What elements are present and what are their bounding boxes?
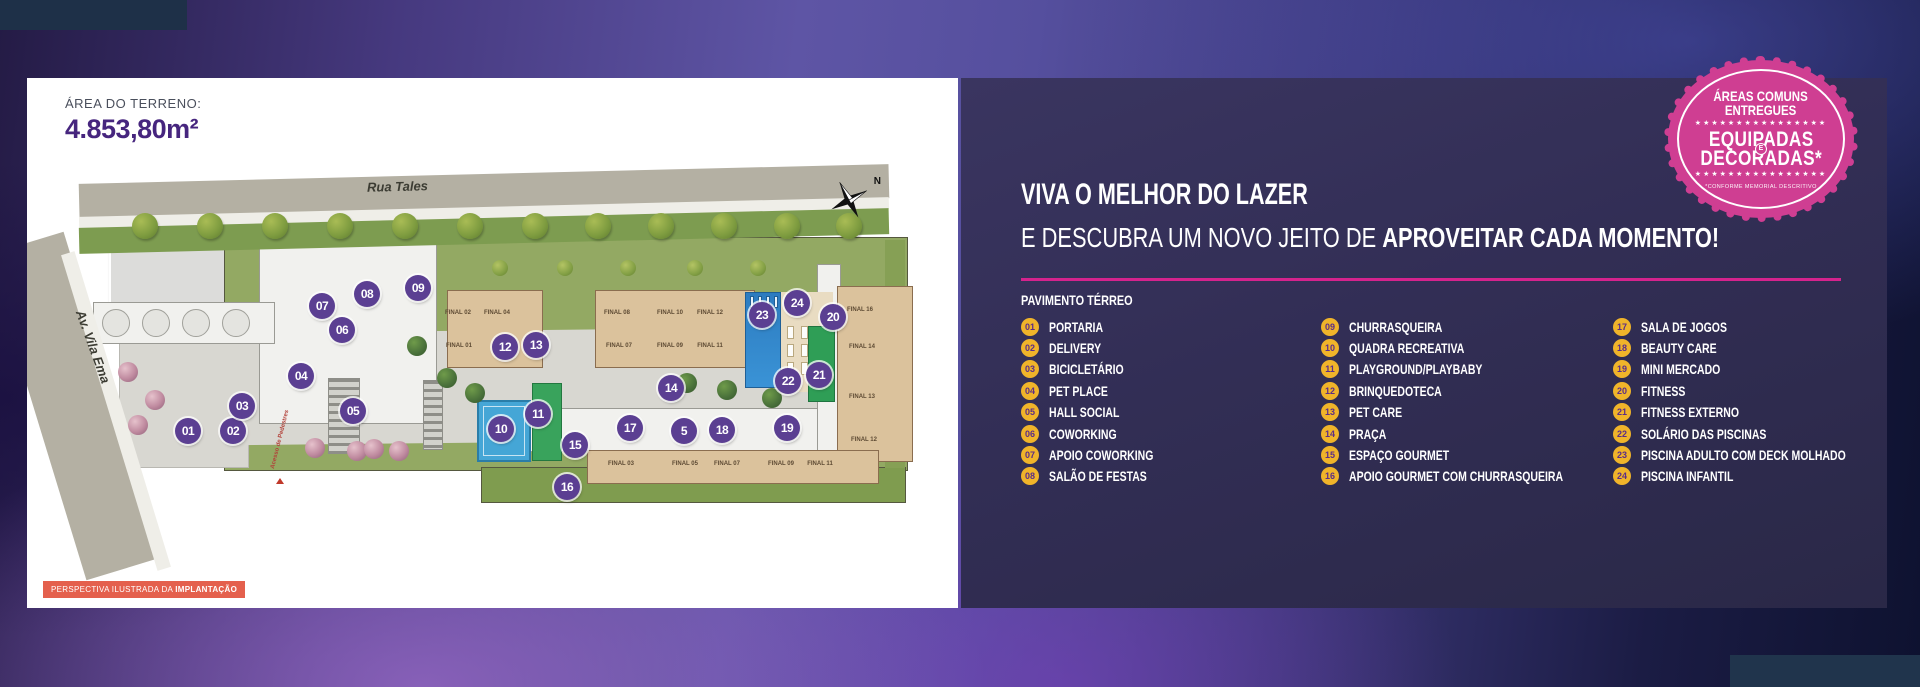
legend-label: APOIO COWORKING: [1049, 447, 1153, 463]
plan-marker-08: 08: [354, 281, 380, 307]
legend-label: SALA DE JOGOS: [1641, 319, 1727, 335]
plan-caption: PERSPECTIVA ILUSTRADA DA IMPLANTAÇÃO: [43, 581, 245, 598]
plan-marker-04: 04: [288, 363, 314, 389]
legend-item-05: 05HALL SOCIAL: [1021, 402, 1311, 423]
legend-label: BEAUTY CARE: [1641, 340, 1717, 356]
legend-number-badge: 24: [1613, 467, 1631, 485]
building-unit-label: FINAL 07: [606, 343, 632, 349]
legend-number-badge: 18: [1613, 339, 1631, 357]
building-unit-label: FINAL 13: [849, 394, 875, 400]
badge-connector-e: E: [1755, 143, 1767, 155]
legend-item-06: 06COWORKING: [1021, 423, 1311, 444]
plan-caption-prefix: PERSPECTIVA ILUSTRADA DA: [51, 585, 175, 594]
building-unit-label: FINAL 01: [446, 343, 472, 349]
headline-line2-bold: APROVEITAR CADA MOMENTO!: [1382, 222, 1719, 253]
legend-item-02: 02DELIVERY: [1021, 337, 1311, 358]
shrub-icon: [750, 260, 766, 276]
legend-number-badge: 12: [1321, 382, 1339, 400]
compass-north-icon: N: [827, 176, 883, 220]
legend-item-10: 10QUADRA RECREATIVA: [1321, 337, 1611, 358]
legend-label: PET PLACE: [1049, 383, 1108, 399]
legend-item-01: 01PORTARIA: [1021, 316, 1311, 337]
lounge-chair: [801, 326, 808, 339]
legend-label: SALÃO DE FESTAS: [1049, 468, 1147, 484]
building-unit-label: FINAL 02: [445, 310, 471, 316]
legend-item-18: 18BEAUTY CARE: [1613, 337, 1883, 358]
legend-item-08: 08SALÃO DE FESTAS: [1021, 466, 1311, 487]
legend-label: FITNESS EXTERNO: [1641, 404, 1739, 420]
lounge-chair: [787, 344, 794, 357]
legend-label: PISCINA ADULTO COM DECK MOLHADO: [1641, 447, 1846, 463]
building-unit-label: FINAL 03: [608, 461, 634, 467]
building-unit-label: FINAL 09: [657, 343, 683, 349]
plan-marker-02: 02: [220, 418, 246, 444]
garage-ramp: [423, 380, 443, 450]
legend-number-badge: 10: [1321, 339, 1339, 357]
legend-item-15: 15ESPAÇO GOURMET: [1321, 444, 1611, 465]
plan-marker-13: 13: [523, 332, 549, 358]
flowering-tree-icon: [145, 390, 165, 410]
legend-item-16: 16APOIO GOURMET COM CHURRASQUEIRA: [1321, 466, 1611, 487]
legend-label: BRINQUEDOTECA: [1349, 383, 1442, 399]
brochure-page: Rua Tales Av. Vila Ema Acesso de Pedestr…: [0, 0, 1920, 687]
legend-column-2: 09CHURRASQUEIRA10QUADRA RECREATIVA11PLAY…: [1321, 316, 1611, 487]
legend-number-badge: 19: [1613, 360, 1631, 378]
legend-item-17: 17SALA DE JOGOS: [1613, 316, 1883, 337]
legend-number-badge: 16: [1321, 467, 1339, 485]
tree-icon: [717, 380, 737, 400]
legend-label: APOIO GOURMET COM CHURRASQUEIRA: [1349, 468, 1563, 484]
background-rect-top-left: [0, 0, 187, 30]
legend-item-07: 07APOIO COWORKING: [1021, 444, 1311, 465]
badge-line1: ÁREAS COMUNS: [1714, 89, 1808, 103]
legend-label: COWORKING: [1049, 426, 1117, 442]
building-unit-label: FINAL 07: [714, 461, 740, 467]
tree-icon: [392, 213, 418, 239]
tree-icon: [465, 383, 485, 403]
legend-item-11: 11PLAYGROUND/PLAYBABY: [1321, 359, 1611, 380]
plan-marker-5: 5: [671, 418, 697, 444]
tank-circle: [102, 309, 130, 337]
tree-icon: [132, 213, 158, 239]
tree-icon: [585, 213, 611, 239]
legend-label: HALL SOCIAL: [1049, 404, 1119, 420]
legend-item-04: 04PET PLACE: [1021, 380, 1311, 401]
legend-label: PLAYGROUND/PLAYBABY: [1349, 361, 1482, 377]
building-unit-label: FINAL 16: [847, 307, 873, 313]
plan-marker-06: 06: [329, 317, 355, 343]
legend-number-badge: 07: [1021, 446, 1039, 464]
plan-marker-24: 24: [784, 290, 810, 316]
lounge-chair: [801, 344, 808, 357]
plan-marker-22: 22: [775, 368, 801, 394]
headline-line1: VIVA O MELHOR DO LAZER: [1021, 178, 1308, 212]
legend-number-badge: 23: [1613, 446, 1631, 464]
flowering-tree-icon: [389, 441, 409, 461]
plan-marker-11: 11: [525, 401, 551, 427]
legend-label: CHURRASQUEIRA: [1349, 319, 1442, 335]
plan-marker-21: 21: [806, 362, 832, 388]
shrub-icon: [687, 260, 703, 276]
building-unit-label: FINAL 14: [849, 344, 875, 350]
legend-number-badge: 20: [1613, 382, 1631, 400]
tank-circle: [142, 309, 170, 337]
tree-icon: [437, 368, 457, 388]
legend-number-badge: 06: [1021, 425, 1039, 443]
shrub-icon: [492, 260, 508, 276]
plan-marker-17: 17: [617, 415, 643, 441]
pool-lane: [774, 296, 778, 308]
legend-column-3: 17SALA DE JOGOS18BEAUTY CARE19MINI MERCA…: [1613, 316, 1883, 487]
legend-item-03: 03BICICLETÁRIO: [1021, 359, 1311, 380]
plan-marker-14: 14: [658, 375, 684, 401]
legend-item-20: 20FITNESS: [1613, 380, 1883, 401]
legend-label: BICICLETÁRIO: [1049, 361, 1124, 377]
building-unit-label: FINAL 12: [851, 437, 877, 443]
shrub-icon: [557, 260, 573, 276]
tree-icon: [197, 213, 223, 239]
legend-number-badge: 02: [1021, 339, 1039, 357]
tower-block-middle: [595, 290, 755, 368]
flowering-tree-icon: [364, 439, 384, 459]
compass-n-label: N: [874, 176, 881, 187]
legend-item-12: 12BRINQUEDOTECA: [1321, 380, 1611, 401]
plan-marker-18: 18: [709, 417, 735, 443]
flowering-tree-icon: [128, 415, 148, 435]
tree-icon: [407, 336, 427, 356]
legend-number-badge: 04: [1021, 382, 1039, 400]
legend-number-badge: 22: [1613, 425, 1631, 443]
legend-label: PRAÇA: [1349, 426, 1386, 442]
flowering-tree-icon: [305, 438, 325, 458]
building-unit-label: FINAL 08: [604, 310, 630, 316]
equipped-decorated-badge: ÁREAS COMUNS ENTREGUES ★★★★★★★★★★★★★★★★ …: [1668, 60, 1854, 218]
site-plan-panel: Rua Tales Av. Vila Ema Acesso de Pedestr…: [27, 78, 958, 608]
lounge-chair: [787, 326, 794, 339]
legend-label: ESPAÇO GOURMET: [1349, 447, 1449, 463]
legend-label: PISCINA INFANTIL: [1641, 468, 1733, 484]
legend-label: MINI MERCADO: [1641, 361, 1720, 377]
plan-marker-15: 15: [562, 432, 588, 458]
plan-marker-10: 10: [488, 416, 514, 442]
legend-number-badge: 11: [1321, 360, 1339, 378]
terrain-area-value: 4.853,80m²: [65, 114, 201, 145]
headline-line2: E DESCUBRA UM NOVO JEITO DE APROVEITAR C…: [1021, 222, 1719, 254]
background-rect-bottom-right: [1730, 655, 1920, 687]
terrain-area-label: ÁREA DO TERRENO:: [65, 96, 201, 111]
section-label-pavimento-terreo: PAVIMENTO TÉRREO: [1021, 292, 1133, 308]
legend-number-badge: 14: [1321, 425, 1339, 443]
pink-divider: [1021, 278, 1841, 281]
legend-item-22: 22SOLÁRIO DAS PISCINAS: [1613, 423, 1883, 444]
legend-item-21: 21FITNESS EXTERNO: [1613, 402, 1883, 423]
legend-number-badge: 03: [1021, 360, 1039, 378]
legend-item-09: 09CHURRASQUEIRA: [1321, 316, 1611, 337]
pedestrian-access-arrow-icon: [276, 478, 284, 484]
plan-marker-20: 20: [820, 304, 846, 330]
plan-marker-12: 12: [492, 334, 518, 360]
tree-icon: [711, 213, 737, 239]
building-unit-label: FINAL 05: [672, 461, 698, 467]
legend-number-badge: 17: [1613, 318, 1631, 336]
legend-column-1: 01PORTARIA02DELIVERY03BICICLETÁRIO04PET …: [1021, 316, 1311, 487]
plan-marker-16: 16: [554, 474, 580, 500]
plan-marker-09: 09: [405, 275, 431, 301]
tank-circle: [182, 309, 210, 337]
tower-block-bottom: [587, 450, 879, 484]
plan-marker-05: 05: [340, 398, 366, 424]
plan-marker-19: 19: [774, 415, 800, 441]
building-unit-label: FINAL 11: [807, 461, 833, 467]
legend-label: DELIVERY: [1049, 340, 1101, 356]
tree-icon: [774, 213, 800, 239]
legend-number-badge: 05: [1021, 403, 1039, 421]
legend-item-14: 14PRAÇA: [1321, 423, 1611, 444]
building-unit-label: FINAL 04: [484, 310, 510, 316]
plan-marker-03: 03: [229, 393, 255, 419]
legend-number-badge: 08: [1021, 467, 1039, 485]
legend-number-badge: 09: [1321, 318, 1339, 336]
legend-number-badge: 13: [1321, 403, 1339, 421]
legend-item-24: 24PISCINA INFANTIL: [1613, 466, 1883, 487]
tree-icon: [262, 213, 288, 239]
building-unit-label: FINAL 11: [697, 343, 723, 349]
plan-marker-07: 07: [309, 293, 335, 319]
tree-icon: [522, 213, 548, 239]
tank-circle: [222, 309, 250, 337]
legend-number-badge: 15: [1321, 446, 1339, 464]
badge-line2: ENTREGUES: [1725, 103, 1796, 117]
headline-line2-regular: E DESCUBRA UM NOVO JEITO DE: [1021, 222, 1382, 253]
shrub-icon: [620, 260, 636, 276]
terrain-area-block: ÁREA DO TERRENO: 4.853,80m²: [65, 96, 201, 145]
legend-label: PET CARE: [1349, 404, 1402, 420]
flowering-tree-icon: [118, 362, 138, 382]
building-unit-label: FINAL 12: [697, 310, 723, 316]
plan-marker-23: 23: [749, 302, 775, 328]
plan-marker-01: 01: [175, 418, 201, 444]
tree-icon: [648, 213, 674, 239]
legend-number-badge: 01: [1021, 318, 1039, 336]
tanks-building: [93, 302, 275, 344]
tree-icon: [327, 213, 353, 239]
legend-label: QUADRA RECREATIVA: [1349, 340, 1464, 356]
plan-caption-bold: IMPLANTAÇÃO: [175, 585, 237, 594]
legend-number-badge: 21: [1613, 403, 1631, 421]
badge-footnote: *CONFORME MEMORIAL DESCRITIVO: [1705, 184, 1817, 190]
legend-label: SOLÁRIO DAS PISCINAS: [1641, 426, 1766, 442]
legend-label: PORTARIA: [1049, 319, 1103, 335]
legend-item-19: 19MINI MERCADO: [1613, 359, 1883, 380]
building-unit-label: FINAL 09: [768, 461, 794, 467]
legend-item-13: 13PET CARE: [1321, 402, 1611, 423]
badge-stars-bottom: ★★★★★★★★★★★★★★★★: [1695, 170, 1827, 179]
building-unit-label: FINAL 10: [657, 310, 683, 316]
legend-item-23: 23PISCINA ADULTO COM DECK MOLHADO: [1613, 444, 1883, 465]
legend-label: FITNESS: [1641, 383, 1685, 399]
street-label-rua-tales: Rua Tales: [367, 178, 428, 194]
badge-stars-top: ★★★★★★★★★★★★★★★★: [1695, 119, 1827, 128]
tree-icon: [457, 213, 483, 239]
